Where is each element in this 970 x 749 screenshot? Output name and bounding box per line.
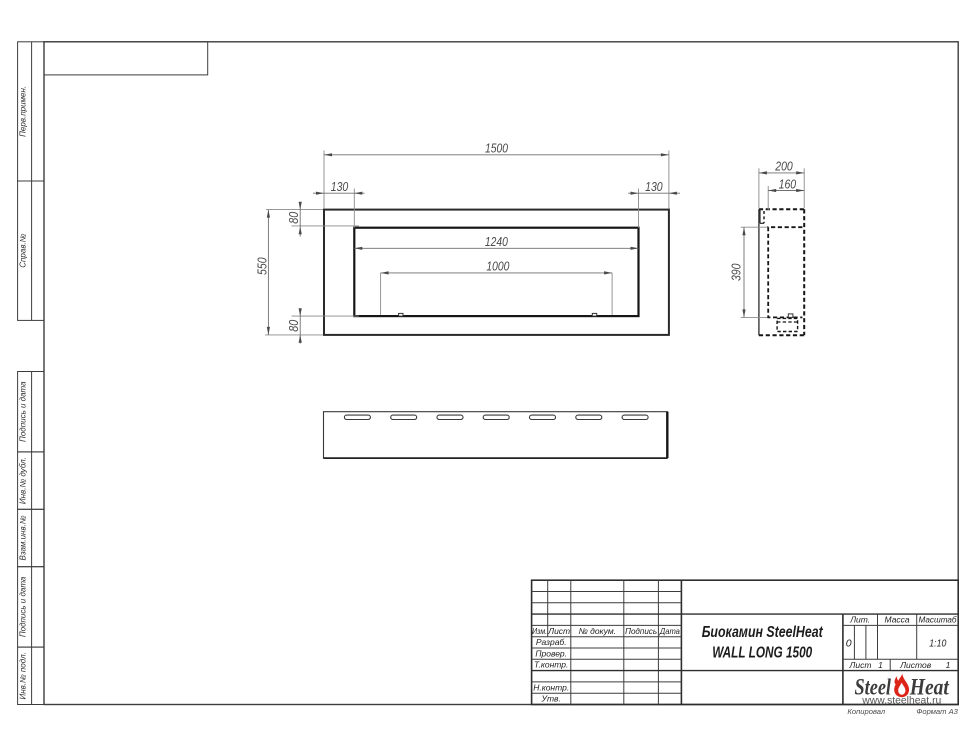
svg-text:Масштаб: Масштаб — [919, 615, 958, 625]
svg-text:Копировал: Копировал — [847, 707, 885, 716]
svg-text:Масса: Масса — [885, 615, 910, 625]
svg-text:Подпись и дата: Подпись и дата — [18, 381, 27, 442]
svg-text:Лист: Лист — [547, 626, 570, 636]
svg-text:Взам.инв.№: Взам.инв.№ — [18, 515, 27, 560]
svg-text:80: 80 — [287, 212, 301, 224]
svg-text:Подпись и дата: Подпись и дата — [18, 576, 27, 637]
svg-text:Лит.: Лит. — [849, 615, 870, 625]
svg-text:Инв.№ подл.: Инв.№ подл. — [18, 652, 27, 699]
svg-text:Утв.: Утв. — [541, 694, 561, 704]
svg-text:1500: 1500 — [485, 142, 508, 156]
svg-text:Н.контр.: Н.контр. — [533, 682, 569, 692]
svg-text:Биокамин SteelHeat: Биокамин SteelHeat — [702, 624, 824, 641]
svg-text:Инв.№ дубл.: Инв.№ дубл. — [18, 457, 27, 504]
svg-text:130: 130 — [645, 180, 663, 194]
svg-text:1240: 1240 — [485, 235, 508, 249]
svg-text:1: 1 — [946, 660, 951, 670]
svg-text:Т.контр.: Т.контр. — [534, 660, 568, 670]
svg-text:1: 1 — [878, 660, 883, 670]
svg-text:1:10: 1:10 — [929, 638, 946, 650]
svg-text:550: 550 — [256, 257, 270, 275]
svg-text:Перв.примен.: Перв.примен. — [18, 86, 27, 137]
svg-text:1000: 1000 — [486, 260, 509, 274]
svg-text:Подпись: Подпись — [625, 626, 657, 636]
svg-text:Провер.: Провер. — [535, 648, 567, 658]
svg-text:Изм.: Изм. — [532, 626, 547, 636]
svg-text:160: 160 — [779, 177, 797, 191]
svg-text:www.steelheat.ru: www.steelheat.ru — [861, 696, 941, 707]
svg-text:Формат А3: Формат А3 — [916, 707, 958, 716]
svg-text:Лист: Лист — [849, 660, 872, 670]
svg-text:Справ.№: Справ.№ — [18, 233, 27, 267]
svg-text:80: 80 — [287, 320, 301, 332]
svg-text:Разраб.: Разраб. — [536, 637, 567, 647]
svg-text:200: 200 — [774, 160, 792, 174]
svg-text:Дата: Дата — [659, 626, 680, 636]
svg-text:390: 390 — [730, 264, 744, 282]
svg-text:WALL LONG 1500: WALL LONG 1500 — [712, 644, 812, 661]
svg-text:130: 130 — [331, 180, 349, 194]
svg-text:№ докум.: № докум. — [579, 626, 616, 636]
svg-text:Листов: Листов — [899, 660, 932, 670]
svg-text:0: 0 — [846, 638, 852, 650]
